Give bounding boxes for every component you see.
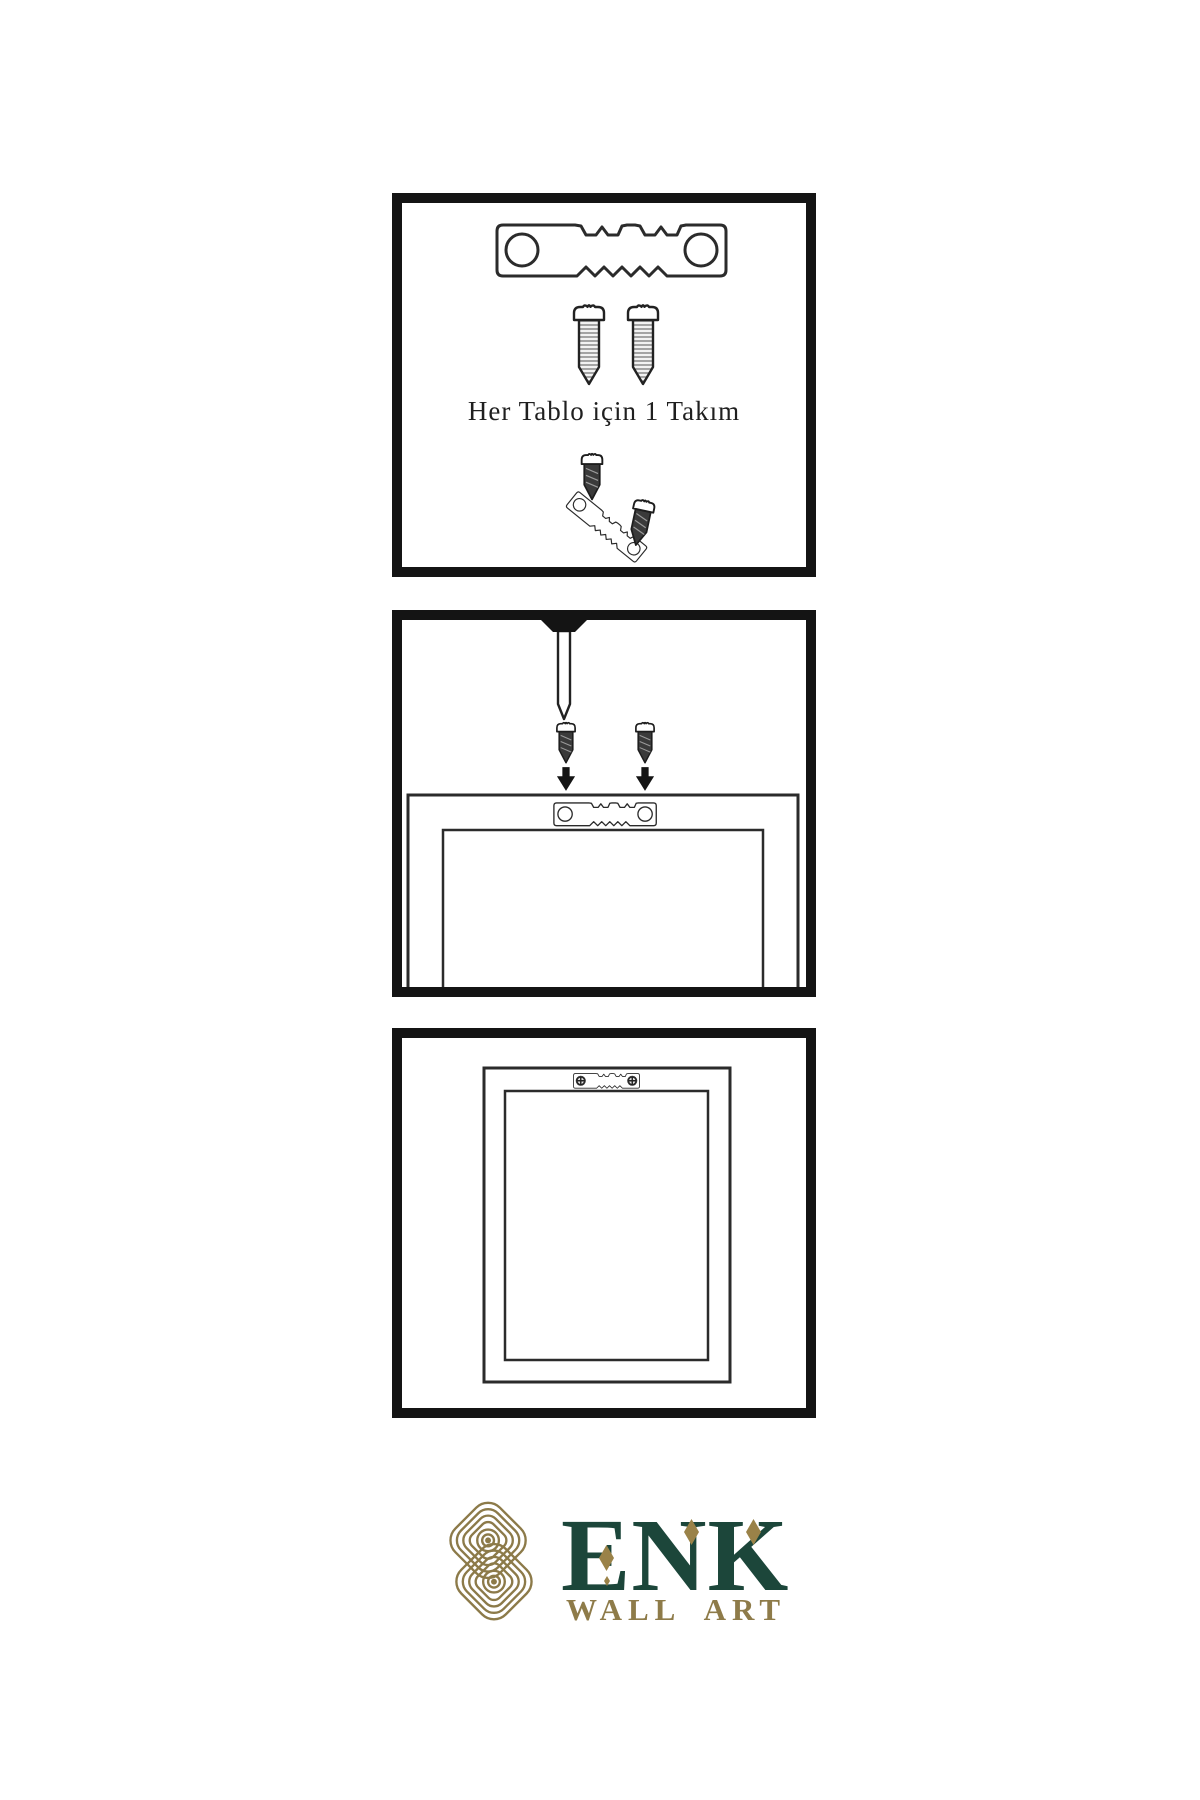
hanger-assembly-detail bbox=[566, 454, 656, 563]
knot-logo-icon bbox=[432, 1497, 552, 1627]
brand-subtitle: WALL ART bbox=[566, 1592, 806, 1628]
mounting-illustration bbox=[402, 620, 806, 987]
screw-icon bbox=[628, 305, 658, 384]
step-1-hardware-panel: Her Tablo için 1 Takım bbox=[392, 193, 816, 577]
arrow-down-icon bbox=[636, 767, 654, 791]
wall-nail-icon bbox=[541, 620, 587, 719]
hardware-kit-illustration bbox=[402, 203, 806, 567]
hanging-frame-illustration bbox=[402, 1038, 806, 1408]
dark-screw-icon bbox=[636, 723, 654, 763]
dark-screw-icon bbox=[582, 454, 603, 500]
instruction-sheet: Her Tablo için 1 Takım bbox=[0, 0, 1200, 1800]
kit-caption: Her Tablo için 1 Takım bbox=[402, 396, 806, 427]
dark-screw-icon bbox=[557, 723, 575, 763]
step-2-mounting-panel bbox=[392, 610, 816, 997]
step-3-result-panel bbox=[392, 1028, 816, 1418]
sawtooth-hanger-icon bbox=[497, 225, 726, 276]
screw-icon bbox=[574, 305, 604, 384]
frame-back-illustration bbox=[408, 795, 798, 987]
arrow-down-icon bbox=[557, 767, 575, 791]
